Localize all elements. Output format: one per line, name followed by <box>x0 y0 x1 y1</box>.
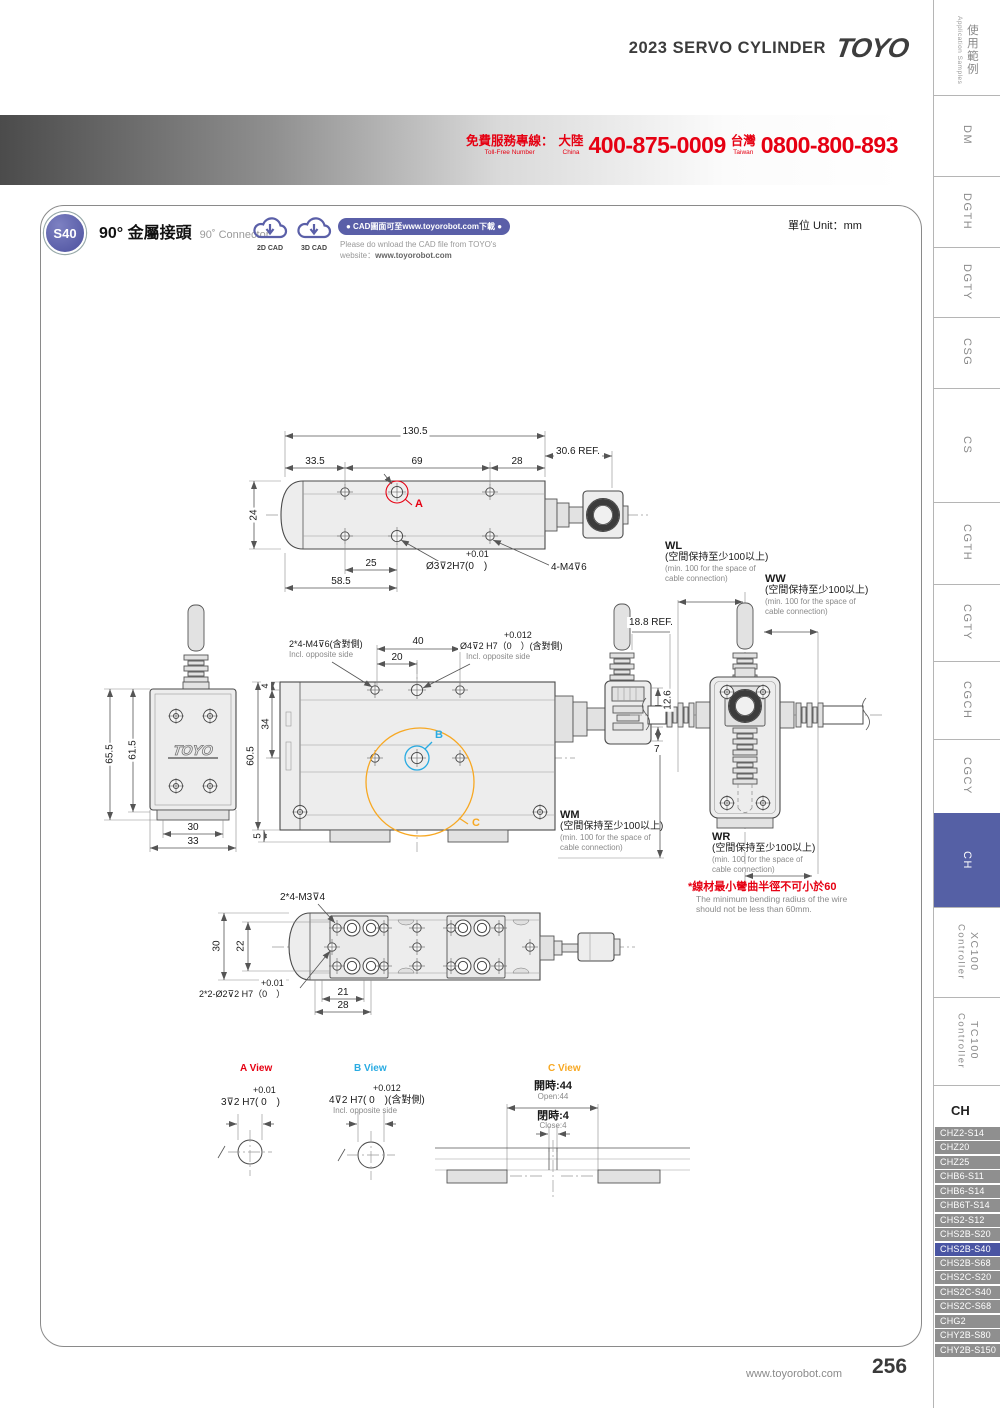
sidebar-tab-cgcy[interactable]: CGCY <box>934 739 1000 814</box>
model-item[interactable]: CHY2B-S80 <box>935 1329 1000 1342</box>
dim-7: 7 <box>652 744 662 755</box>
dim-34: 34 <box>261 716 272 731</box>
dim-total-length: 130.5 <box>400 426 429 437</box>
thread-spec: 4-M4⊽6 <box>549 562 589 573</box>
sidebar-tab-dm[interactable]: DM <box>934 95 1000 177</box>
space-wm-en1: (min. 100 for the space of <box>558 834 653 843</box>
sidebar-tab-cs[interactable]: CS <box>934 388 1000 503</box>
sidebar-tab-application-samples[interactable]: Application Samples 使用範例 <box>934 5 1000 96</box>
bend-radius-warning-en1: The minimum bending radius of the wire <box>694 895 849 904</box>
catalog-page: 2023 SERVO CYLINDER TOYO 免費服務專線：Toll-Fre… <box>0 0 1000 1408</box>
bottom-thread-spec: 2*4-M3⊽4 <box>278 892 327 903</box>
space-wl-en2: cable connection) <box>663 575 730 584</box>
model-group-label: CH <box>951 1103 970 1118</box>
page-number: 256 <box>872 1355 907 1379</box>
model-item[interactable]: CHY2B-S150 <box>935 1344 1000 1357</box>
dim-30: 30 <box>185 822 200 833</box>
space-ww-cn: (空間保持至少100以上) <box>763 585 870 596</box>
dim-61-5: 61.5 <box>128 738 139 761</box>
model-item[interactable]: CHG2 <box>935 1315 1000 1328</box>
dim-33: 33 <box>185 836 200 847</box>
dim-40: 40 <box>410 636 425 647</box>
model-item[interactable]: CHS2B-S20 <box>935 1228 1000 1241</box>
model-item[interactable]: CHS2B-S68 <box>935 1257 1000 1270</box>
dim-b30: 30 <box>212 938 223 953</box>
sidebar-tab-dgth[interactable]: DGTH <box>934 176 1000 248</box>
sidebar-tab-xc100[interactable]: Controller XC100 <box>934 907 1000 998</box>
callout-b: B <box>433 729 445 741</box>
model-item[interactable]: CHS2C-S20 <box>935 1271 1000 1284</box>
logo-underline <box>168 757 218 759</box>
sidebar-tab-cgty[interactable]: CGTY <box>934 584 1000 662</box>
model-item[interactable]: CHS2-S12 <box>935 1214 1000 1227</box>
c-view-close-en: Close:4 <box>537 1122 568 1131</box>
space-wr: WR <box>710 831 732 843</box>
toyo-engraved-logo: TOYO <box>163 742 223 758</box>
space-wm-cn: (空間保持至少100以上) <box>558 821 665 832</box>
model-item[interactable]: CHS2C-S40 <box>935 1286 1000 1299</box>
footer-url: www.toyorobot.com <box>746 1368 842 1380</box>
model-item[interactable]: CHZ20 <box>935 1141 1000 1154</box>
dim-20: 20 <box>389 652 404 663</box>
sidebar-tab-dgty[interactable]: DGTY <box>934 247 1000 318</box>
a-view-tolerance: +0.01 <box>251 1086 278 1096</box>
dim-33-5: 33.5 <box>303 456 326 467</box>
dim-12-6: 12.6 <box>663 688 674 711</box>
model-item[interactable]: CHB6T-S14 <box>935 1199 1000 1212</box>
dim-25: 25 <box>363 558 378 569</box>
a-view-spec: 3⊽2 H7( 0 ) <box>219 1097 282 1108</box>
sidebar-tab-csg[interactable]: CSG <box>934 317 1000 389</box>
plan-hole-tolerance: +0.012 <box>502 631 534 641</box>
b-view-spec: 4⊽2 H7( 0 )(含對側) <box>327 1095 427 1106</box>
dim-b22: 22 <box>236 938 247 953</box>
bend-radius-warning-en2: should not be less than 60mm. <box>694 905 814 914</box>
dim-18-8-ref: 18.8 REF. <box>627 617 675 628</box>
bottom-hole-spec: 2*2-Ø2⊽2 H7（0 ） <box>197 990 287 1000</box>
sidebar-tab-tc100[interactable]: Controller TC100 <box>934 997 1000 1086</box>
space-wm: WM <box>558 809 582 821</box>
model-item[interactable]: CHB6-S11 <box>935 1170 1000 1183</box>
sidebar-tab-ch[interactable]: CH <box>934 813 1000 908</box>
space-wr-en1: (min. 100 for the space of <box>710 856 805 865</box>
bend-radius-warning-cn: *線材最小彎曲半徑不可小於60 <box>686 881 839 893</box>
hole-tolerance: +0.01 <box>464 550 491 560</box>
model-item[interactable]: CHB6-S14 <box>935 1185 1000 1198</box>
b-view-tolerance: +0.012 <box>371 1084 403 1094</box>
dim-58-5: 58.5 <box>329 576 352 587</box>
plan-hole-en: Incl. opposite side <box>464 653 532 662</box>
model-item[interactable]: CHS2C-S68 <box>935 1300 1000 1313</box>
model-list: CHZ2-S14 CHZ20 CHZ25 CHB6-S11 CHB6-S14 C… <box>935 1127 1000 1358</box>
plan-thread-spec: 2*4-M4⊽6(含對側) <box>287 640 365 650</box>
dim-b21: 21 <box>335 987 350 998</box>
space-ww-en2: cable connection) <box>763 608 830 617</box>
plan-thread-en: Incl. opposite side <box>287 651 355 660</box>
plan-hole-spec: Ø4⊽2 H7（0 ）(含對側) <box>458 642 565 652</box>
sidebar-tab-cgch[interactable]: CGCH <box>934 661 1000 740</box>
b-view-title: B View <box>352 1063 389 1074</box>
dim-ref: 30.6 REF. <box>554 446 602 457</box>
dim-28: 28 <box>509 456 524 467</box>
technical-drawing-linework: .b{fill:#ededed;stroke:#4a4a4a;stroke-wi… <box>0 0 1000 1408</box>
dim-60-5: 60.5 <box>246 744 257 767</box>
space-ww: WW <box>763 573 788 585</box>
bottom-hole-tolerance: +0.01 <box>259 979 286 989</box>
b-view-en: Incl. opposite side <box>331 1107 399 1116</box>
dim-65-5: 65.5 <box>105 742 116 765</box>
sidebar-tab-cgth[interactable]: CGTH <box>934 502 1000 585</box>
model-item[interactable]: CHZ25 <box>935 1156 1000 1169</box>
model-item-active[interactable]: CHS2B-S40 <box>935 1243 1000 1256</box>
space-wr-cn: (空間保持至少100以上) <box>710 843 817 854</box>
c-view-open-cn: 開時:44 <box>532 1080 574 1092</box>
space-wl-en1: (min. 100 for the space of <box>663 565 758 574</box>
space-wl-cn: (空間保持至少100以上) <box>663 552 770 563</box>
space-wm-en2: cable connection) <box>558 844 625 853</box>
dim-5: 5 <box>253 831 264 841</box>
a-view-title: A View <box>238 1063 274 1074</box>
callout-a: A <box>413 498 425 510</box>
dim-69: 69 <box>409 456 424 467</box>
dim-4: 4 <box>261 681 271 690</box>
c-view-title: C View <box>546 1063 583 1074</box>
callout-c: C <box>470 817 482 829</box>
hole-spec: Ø3⊽2H7(0 ) <box>424 561 489 572</box>
model-item[interactable]: CHZ2-S14 <box>935 1127 1000 1140</box>
dim-24: 24 <box>249 507 260 522</box>
c-view-open-en: Open:44 <box>536 1093 571 1102</box>
space-wl: WL <box>663 540 684 552</box>
space-wr-en2: cable connection) <box>710 866 777 875</box>
dim-b28: 28 <box>335 1000 350 1011</box>
space-ww-en1: (min. 100 for the space of <box>763 598 858 607</box>
